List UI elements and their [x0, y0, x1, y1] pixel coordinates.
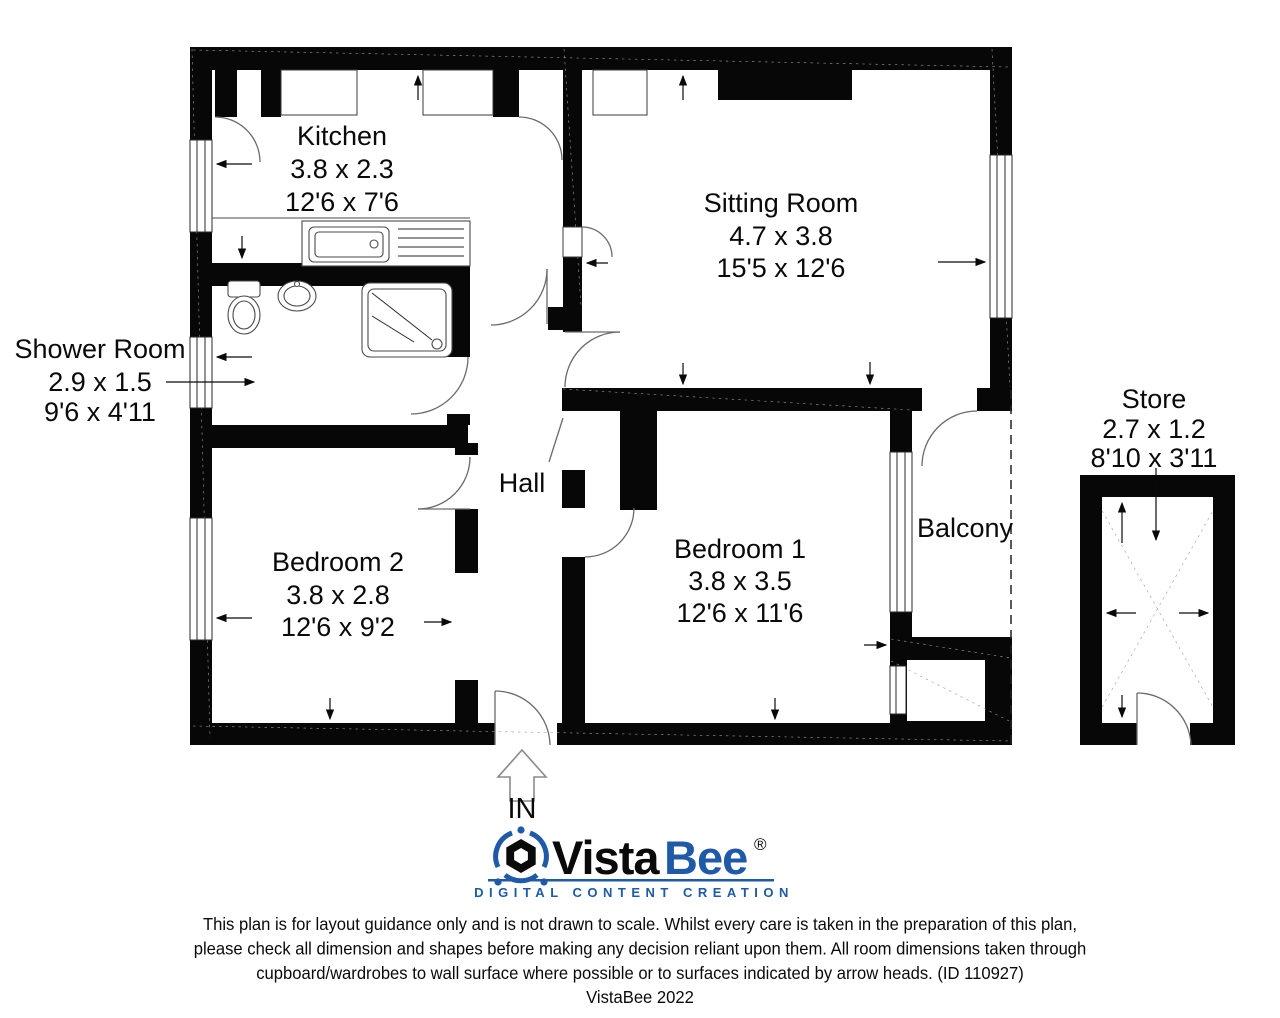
floorplan-drawing: Kitchen 3.8 x 2.3 12'6 x 7'6 Sitting Roo… — [0, 0, 1280, 1018]
logo-tagline: DIGITAL CONTENT CREATION — [474, 885, 794, 900]
bedroom2-label: Bedroom 2 3.8 x 2.8 12'6 x 9'2 — [272, 547, 404, 642]
sitting-metric: 4.7 x 3.8 — [729, 221, 833, 251]
sitting-imperial: 15'5 x 12'6 — [717, 253, 846, 283]
balcony-label: Balcony — [917, 513, 1014, 543]
store-label: Store 2.7 x 1.2 8'10 x 3'11 — [1091, 384, 1218, 473]
wordmark-vista: Vista — [552, 831, 660, 884]
logo-divider-line — [488, 879, 774, 882]
bedroom2-window — [190, 518, 212, 640]
bedroom1-door-leaf — [549, 418, 563, 462]
kitchen-imperial: 12'6 x 7'6 — [285, 187, 399, 217]
bedroom1-door-arc — [585, 508, 634, 557]
entrance-door-arc — [495, 691, 550, 745]
store-metric: 2.7 x 1.2 — [1102, 414, 1206, 444]
entrance-marker: IN — [498, 750, 546, 825]
bedroom2-imperial: 12'6 x 9'2 — [281, 612, 395, 642]
sitting-room-label: Sitting Room 4.7 x 3.8 15'5 x 12'6 — [704, 188, 859, 283]
disclaimer: This plan is for layout guidance only an… — [194, 915, 1087, 1007]
bedroom1-imperial: 12'6 x 11'6 — [677, 598, 804, 628]
kitchen-label: Kitchen 3.8 x 2.3 12'6 x 7'6 — [285, 121, 399, 217]
shower-metric: 2.9 x 1.5 — [48, 367, 152, 397]
shower-door-arc — [411, 357, 468, 414]
balcony-window — [890, 452, 912, 612]
hall-label: Hall — [499, 468, 546, 498]
kitchen-name: Kitchen — [297, 121, 387, 151]
entrance-label: IN — [508, 793, 537, 825]
recess-window — [890, 666, 906, 714]
shower-room-label: Shower Room 2.9 x 1.5 9'6 x 4'11 — [14, 334, 185, 427]
store-structure — [1080, 475, 1235, 745]
basin — [278, 281, 316, 311]
kitchen-door-arc — [491, 269, 547, 325]
sitting-room-window — [990, 155, 1012, 318]
disclaimer-line-1: This plan is for layout guidance only an… — [203, 915, 1077, 934]
disclaimer-line-4: VistaBee 2022 — [586, 988, 694, 1007]
bedroom2-metric: 3.8 x 2.8 — [286, 580, 390, 610]
bedroom2-name: Bedroom 2 — [272, 547, 404, 577]
wordmark-bee: Bee — [664, 831, 747, 884]
disclaimer-line-2: please check all dimension and shapes be… — [194, 939, 1087, 958]
shower-tray — [362, 283, 452, 357]
store-name: Store — [1122, 384, 1187, 414]
kitchen-counter-and-sink — [212, 218, 470, 266]
disclaimer-line-3: cupboard/wardrobes to wall surface where… — [256, 964, 1024, 983]
registered-mark: ® — [754, 835, 767, 854]
shower-imperial: 9'6 x 4'11 — [44, 397, 156, 427]
kitchen-top-door-arc — [519, 117, 562, 160]
bedroom1-metric: 3.8 x 3.5 — [688, 566, 792, 596]
floorplan-page: Kitchen 3.8 x 2.3 12'6 x 7'6 Sitting Roo… — [0, 0, 1280, 1018]
toilet — [228, 281, 260, 334]
kitchen-cupboard-door-arc — [215, 117, 260, 162]
vistabee-hexagon-icon — [494, 826, 547, 885]
bedroom1-name: Bedroom 1 — [674, 534, 806, 564]
sitting-cupboard-door-arc — [582, 227, 612, 257]
balcony-door-arc — [922, 411, 977, 466]
kitchen-metric: 3.8 x 2.3 — [290, 154, 394, 184]
bedroom2-door-arc — [418, 457, 470, 509]
sitting-door-arc — [565, 332, 620, 387]
store-imperial: 8'10 x 3'11 — [1091, 443, 1218, 473]
kitchen-window — [190, 140, 212, 232]
shower-name: Shower Room — [14, 334, 185, 364]
vistabee-logo: Vista Bee ® DIGITAL CONTENT CREATION — [474, 826, 794, 900]
shower-window — [190, 337, 212, 408]
sitting-name: Sitting Room — [704, 188, 859, 218]
bedroom1-label: Bedroom 1 3.8 x 3.5 12'6 x 11'6 — [674, 534, 806, 628]
